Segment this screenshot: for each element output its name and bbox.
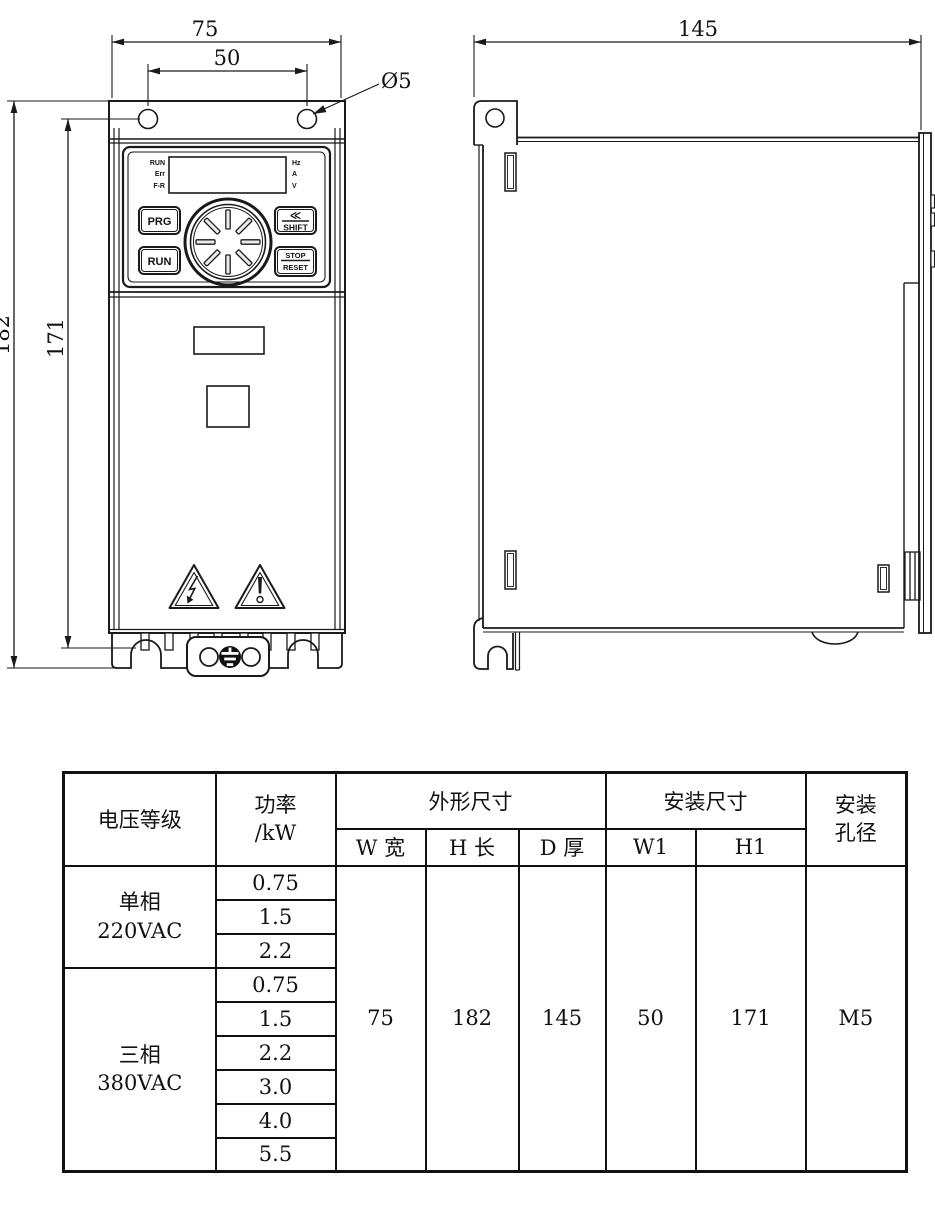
voltage-line2: 380VAC (65, 1069, 215, 1097)
cable-notch (812, 632, 858, 644)
col-header-power: 功率 /kW (216, 773, 336, 866)
group-header-outline: 外形尺寸 (336, 773, 606, 829)
sub-header-h: H 长 (426, 829, 519, 866)
display-screen (169, 157, 286, 193)
dim-hole-diameter-label: Ø5 (381, 69, 412, 93)
dim-mount-height-171: 171 (44, 119, 140, 648)
dim-mount-height-label: 171 (44, 318, 68, 358)
front-body (109, 101, 345, 633)
voltage-group-380vac: 三相 380VAC (64, 968, 216, 1172)
dim-hole-spacing-label: 50 (214, 46, 241, 70)
indicator-err-label: Err (155, 171, 165, 178)
arrowhead-left (148, 68, 160, 75)
sub-header-d: D 厚 (519, 829, 606, 866)
col-header-hole: 安装 孔径 (806, 773, 907, 866)
mounting-hole-right (298, 110, 317, 129)
mounting-slots (505, 153, 889, 592)
col-header-voltage: 电压等级 (64, 773, 216, 866)
technical-drawing: 75 50 Ø5 (0, 0, 935, 745)
side-front-panel-edge (919, 133, 931, 633)
power-cell: 0.75 (216, 968, 336, 1002)
sub-header-h1: H1 (696, 829, 806, 866)
keypad-panel: RUN Err F-R Hz A V PRG RUN (123, 147, 330, 287)
sub-header-w1: W1 (606, 829, 696, 866)
shift-button: ≪ SHIFT (275, 207, 316, 234)
voltage-line1: 三相 (65, 1041, 215, 1069)
voltage-line2: 220VAC (65, 917, 215, 945)
arrowhead-right (909, 39, 921, 46)
value-height: 182 (426, 866, 519, 1172)
unit-hz-label: Hz (292, 160, 301, 167)
power-cell: 2.2 (216, 1036, 336, 1070)
side-view: 145 (474, 17, 935, 670)
dim-width-label: 75 (192, 17, 219, 41)
side-bottom-tab (474, 618, 520, 670)
page: 75 50 Ø5 (0, 0, 935, 1212)
power-cell: 5.5 (216, 1138, 336, 1172)
arrowhead-left (112, 39, 124, 46)
indicator-run-label: RUN (150, 160, 165, 167)
group-header-mounting: 安装尺寸 (606, 773, 806, 829)
run-button-label: RUN (148, 256, 172, 268)
dim-height-182: 182 (0, 101, 118, 668)
arrowhead-bottom (65, 636, 72, 648)
ground-screw-icon (219, 646, 241, 668)
prg-button: PRG (139, 207, 180, 234)
power-cell: 2.2 (216, 934, 336, 968)
unit-a-label: A (292, 171, 297, 178)
power-cell: 3.0 (216, 1070, 336, 1104)
run-button: RUN (139, 247, 180, 274)
shift-button-label: SHIFT (283, 223, 308, 233)
power-header-line1: 功率 (217, 791, 335, 819)
value-w1: 50 (606, 866, 696, 1172)
arrowhead-bottom (11, 656, 18, 668)
side-body (479, 133, 935, 644)
value-h1: 171 (696, 866, 806, 1172)
stop-reset-button: STOP RESET (275, 247, 316, 276)
dim-depth-145: 145 (474, 17, 921, 130)
voltage-line1: 单相 (65, 888, 215, 916)
power-cell: 0.75 (216, 866, 336, 900)
value-depth: 145 (519, 866, 606, 1172)
sub-header-w: W 宽 (336, 829, 426, 866)
arrowhead-right (329, 39, 341, 46)
arrowhead-right (295, 68, 307, 75)
table-row: 单相 220VAC 0.75 75 182 145 50 171 M5 (64, 866, 907, 900)
port-cutout (207, 386, 249, 427)
shift-chevron-icon: ≪ (290, 210, 302, 222)
voltage-group-220vac: 单相 220VAC (64, 866, 216, 968)
power-cell: 4.0 (216, 1104, 336, 1138)
value-width: 75 (336, 866, 426, 1172)
hole-header-line1: 安装 (807, 791, 906, 819)
dim-hole-spacing-50: 50 (148, 46, 307, 106)
power-cell: 1.5 (216, 900, 336, 934)
mounting-hole-left (139, 110, 158, 129)
arrowhead-top (65, 119, 72, 131)
hole-header-line2: 孔径 (807, 819, 906, 847)
electric-hazard-icon (170, 565, 219, 608)
power-cell: 1.5 (216, 1002, 336, 1036)
value-hole-size: M5 (806, 866, 907, 1172)
ground-terminal-block (187, 637, 269, 676)
rotary-dial (185, 199, 271, 285)
indicator-fr-label: F-R (153, 183, 165, 190)
side-top-tab (474, 101, 517, 145)
spec-table: 电压等级 功率 /kW 外形尺寸 安装尺寸 安装 孔径 W 宽 H 长 D 厚 … (62, 771, 908, 1173)
unit-v-label: V (292, 183, 297, 190)
dim-depth-label: 145 (678, 17, 718, 41)
prg-button-label: PRG (148, 216, 172, 228)
vent-slots (905, 552, 920, 600)
side-mounting-hole (486, 109, 504, 127)
front-foot (109, 630, 345, 677)
nameplate-window (194, 327, 264, 354)
dim-hole-diameter: Ø5 (311, 69, 411, 117)
caution-icon (236, 565, 285, 608)
dim-height-label: 182 (0, 315, 14, 355)
arrowhead-top (11, 101, 18, 113)
front-view: 75 50 Ø5 (0, 17, 412, 676)
stop-label: STOP (285, 251, 305, 260)
power-header-line2: /kW (217, 819, 335, 847)
arrowhead-left (474, 39, 486, 46)
reset-label: RESET (283, 263, 308, 272)
